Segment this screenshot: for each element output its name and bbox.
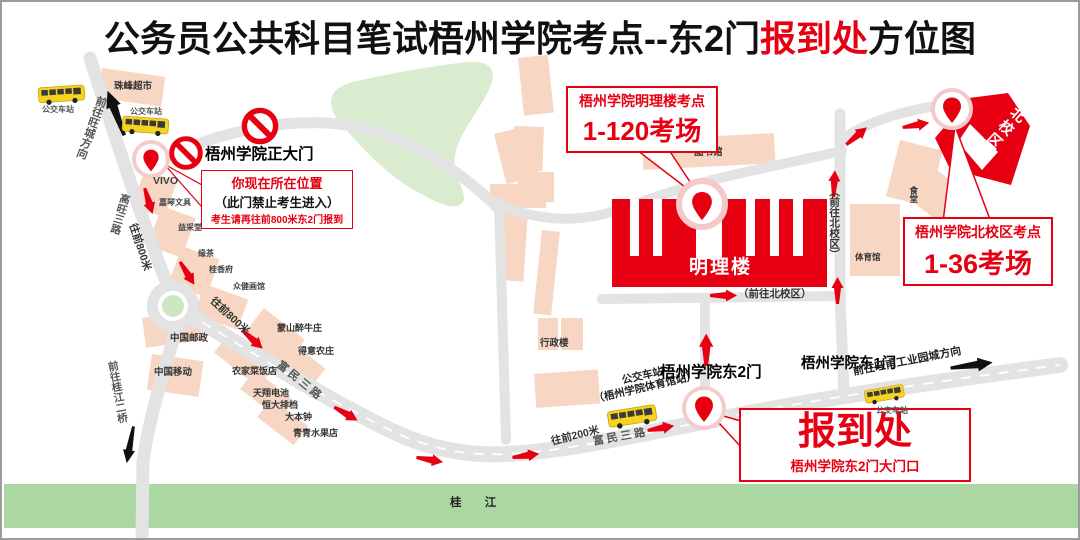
- north-campus-callout: 梧州学院北校区考点 1-36考场: [903, 217, 1053, 286]
- shop-post-label: 中国邮政: [170, 334, 208, 345]
- pin-north-campus: [933, 90, 971, 128]
- pin-main-gate: [134, 142, 168, 176]
- minglilou-line1: 梧州学院明理楼考点: [573, 91, 711, 111]
- location-line1: 你现在所在位置: [205, 173, 349, 192]
- no-entry-icon: [172, 139, 201, 168]
- main-gate-label: 梧州学院正大门: [205, 146, 314, 164]
- bus-stop-label: 公交车站: [130, 107, 162, 116]
- shop-gallery-label: 众健画馆: [233, 282, 265, 291]
- shop-yicai-label: 益采堂: [178, 223, 202, 232]
- building-block: [518, 172, 554, 202]
- location-line3: 考生请再往前800米东2门报到: [205, 211, 349, 226]
- minglilou-building-label: 明理楼: [689, 257, 752, 279]
- location-callout: 你现在所在位置 （此门禁止考生进入） 考生请再往前800米东2门报到: [201, 170, 353, 229]
- shop-dabenzhong-label: 大本钟: [285, 412, 312, 422]
- map-frame: 公务员公共科目笔试梧州学院考点--东2门报到处方位图 公交车站 珠峰超市 前往旺…: [0, 0, 1080, 540]
- pin-minglilou: [679, 181, 725, 227]
- location-line2: （此门禁止考生进入）: [205, 192, 349, 211]
- bus-icon: [122, 116, 169, 137]
- checkin-line2: 梧州学院东2门大门口: [746, 455, 964, 475]
- shop-battery-label: 天翔电池: [253, 388, 289, 398]
- checkin-line1: 报到处: [746, 411, 964, 455]
- building-block: [534, 370, 600, 408]
- no-entry-icon: [244, 110, 275, 141]
- road-north-campus: [840, 114, 844, 395]
- roundabout-green: [162, 295, 184, 317]
- river-label: 桂 江: [450, 497, 506, 510]
- shop-farm-label: 得意农庄: [298, 346, 334, 356]
- supermarket-label: 珠峰超市: [114, 82, 152, 93]
- north-line1: 梧州学院北校区考点: [910, 222, 1046, 242]
- shop-beef-label: 蒙山醉牛庄: [277, 323, 322, 333]
- title-highlight: 报到处: [760, 18, 868, 59]
- shop-vivo-label: VIVO: [153, 175, 178, 187]
- road-campus-vertical: [499, 202, 506, 440]
- title-suffix: 方位图: [868, 18, 976, 59]
- building-block: [518, 55, 554, 116]
- east2-gate-label: 梧州学院东2门: [660, 364, 762, 382]
- shop-guixiang-label: 桂香府: [209, 265, 233, 274]
- page-title: 公务员公共科目笔试梧州学院考点--东2门报到处方位图: [2, 10, 1078, 62]
- river: [4, 484, 1080, 528]
- shop-fruit-label: 青青水果店: [293, 428, 338, 438]
- building-block: [533, 230, 560, 315]
- title-prefix: 公务员公共科目笔试梧州学院考点--东2门: [104, 18, 760, 59]
- admin-building-label: 行政楼: [540, 339, 569, 350]
- north-line2: 1-36考场: [910, 242, 1046, 281]
- road-to-north-v-label: （前往北校区）: [828, 186, 840, 260]
- bus-stop-label: 公交车站: [876, 406, 908, 415]
- checkin-callout: 报到处 梧州学院东2门大门口: [739, 408, 971, 482]
- bus-icon: [38, 85, 85, 106]
- pin-checkin: [684, 388, 724, 428]
- shop-tea-label: 缘茶: [198, 249, 214, 258]
- canteen-label: 食堂: [908, 186, 918, 203]
- minglilou-callout: 梧州学院明理楼考点 1-120考场: [566, 86, 718, 153]
- minglilou-line2: 1-120考场: [573, 111, 711, 148]
- bus-stop-label: 公交车站: [42, 105, 74, 114]
- shop-stationery-label: 嘉琴文具: [159, 198, 191, 207]
- shop-mobile-label: 中国移动: [154, 368, 192, 379]
- shop-restaurant-label: 农家菜饭店: [232, 366, 277, 376]
- building-gym: [850, 204, 900, 276]
- building-block: [512, 126, 544, 171]
- shop-bbq-label: 恒大排档: [262, 400, 298, 410]
- road-to-north-h-label: （前往北校区）: [738, 288, 812, 300]
- gym-building-label: 体育馆: [855, 253, 881, 263]
